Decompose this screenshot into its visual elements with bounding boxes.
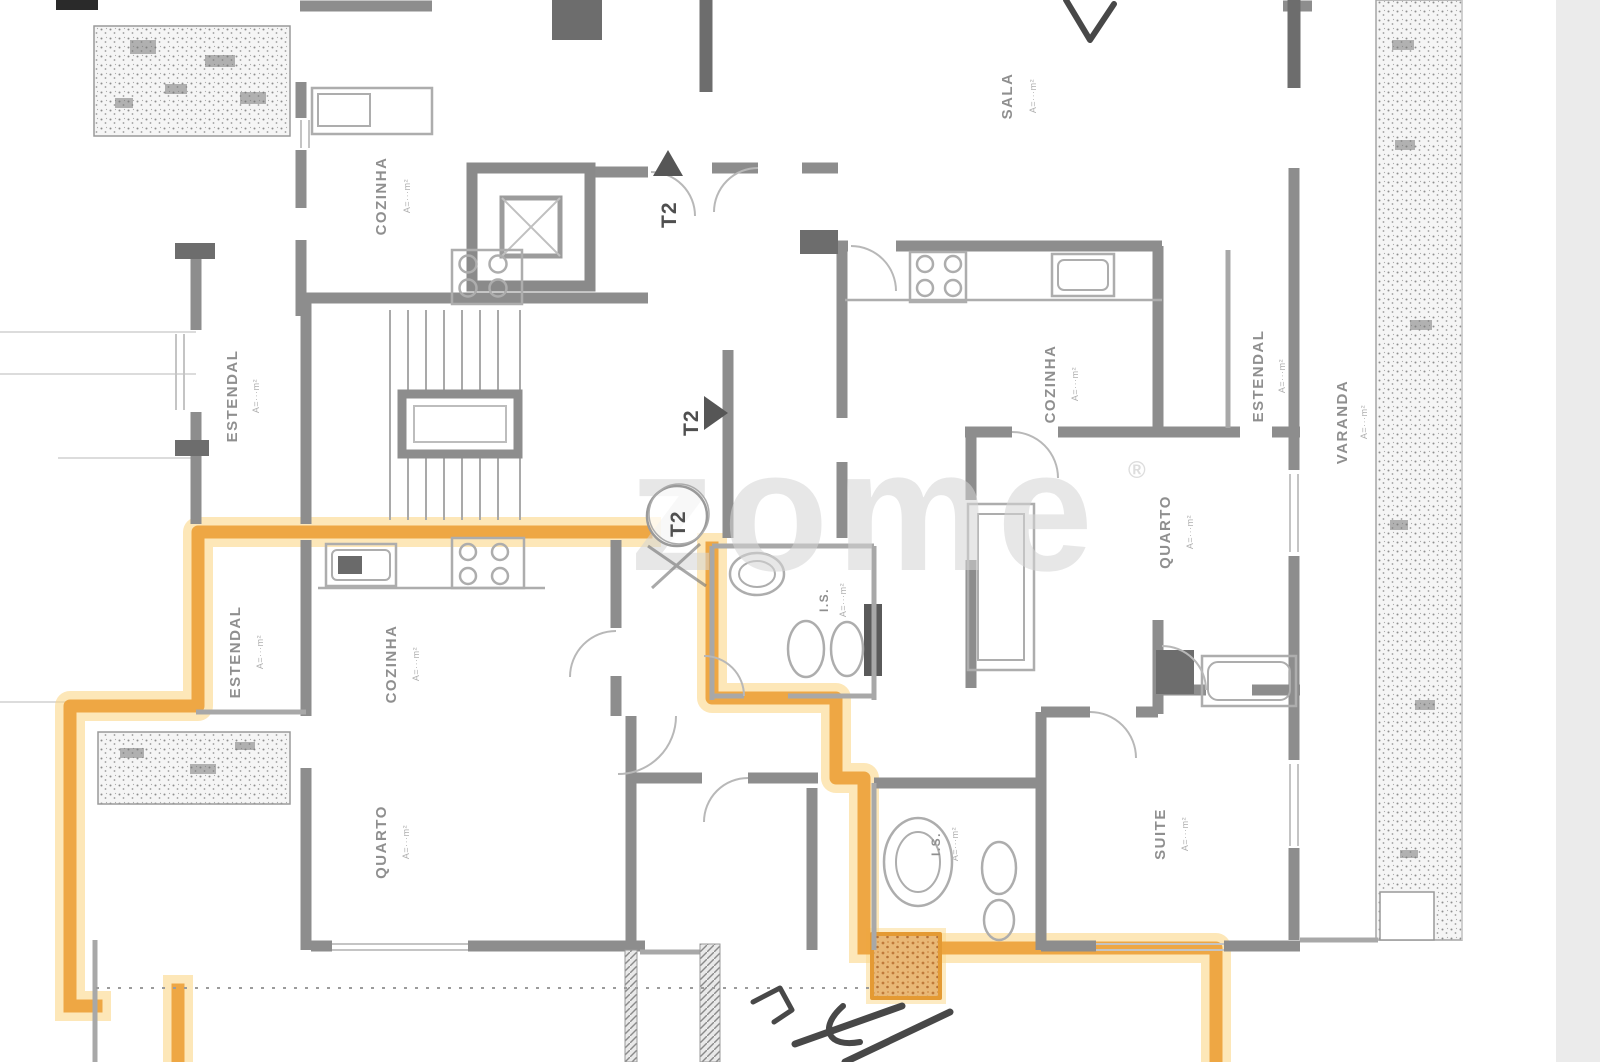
scanned-floor-plan-page: zome ® T2 T2 T2 COZINHA A=···m² ESTENDAL…	[0, 0, 1600, 1062]
svg-text:SUITE: SUITE	[1152, 808, 1169, 860]
svg-text:COZINHA: COZINHA	[383, 625, 400, 704]
svg-text:I.S.: I.S.	[817, 588, 831, 612]
svg-text:A=···m²: A=···m²	[838, 583, 848, 617]
floor-plan-image: zome ® T2 T2 T2 COZINHA A=···m² ESTENDAL…	[0, 0, 1600, 1062]
svg-text:A=···m²: A=···m²	[950, 827, 960, 861]
watermark-registered-icon: ®	[1128, 457, 1146, 484]
svg-text:A=···m²: A=···m²	[255, 635, 265, 669]
svg-text:A=···m²: A=···m²	[1028, 79, 1038, 113]
svg-text:QUARTO: QUARTO	[1157, 495, 1174, 569]
svg-text:QUARTO: QUARTO	[373, 805, 390, 879]
svg-text:COZINHA: COZINHA	[1042, 345, 1059, 424]
svg-text:A=···m²: A=···m²	[1070, 367, 1080, 401]
svg-text:VARANDA: VARANDA	[1334, 380, 1351, 464]
svg-text:ESTENDAL: ESTENDAL	[227, 606, 244, 699]
scan-edge-band	[1556, 0, 1600, 1062]
svg-text:ESTENDAL: ESTENDAL	[1250, 330, 1267, 423]
svg-text:A=···m²: A=···m²	[1277, 359, 1287, 393]
svg-text:I.S.: I.S.	[929, 832, 943, 856]
t2-label-mid: T2	[680, 409, 703, 436]
svg-text:A=···m²: A=···m²	[411, 647, 421, 681]
svg-text:A=···m²: A=···m²	[402, 179, 412, 213]
highlighted-wall-corner	[872, 934, 940, 998]
t2-label-top: T2	[658, 201, 681, 228]
svg-text:SALA: SALA	[999, 73, 1016, 120]
t2-label-badge: T2	[667, 510, 690, 537]
svg-text:A=···m²: A=···m²	[1359, 405, 1369, 439]
scan-corner-mark	[56, 0, 98, 10]
svg-text:A=···m²: A=···m²	[251, 379, 261, 413]
svg-text:ESTENDAL: ESTENDAL	[224, 350, 241, 443]
svg-text:A=···m²: A=···m²	[1185, 515, 1195, 549]
svg-text:A=···m²: A=···m²	[1180, 817, 1190, 851]
svg-text:COZINHA: COZINHA	[373, 157, 390, 236]
svg-text:A=···m²: A=···m²	[401, 825, 411, 859]
